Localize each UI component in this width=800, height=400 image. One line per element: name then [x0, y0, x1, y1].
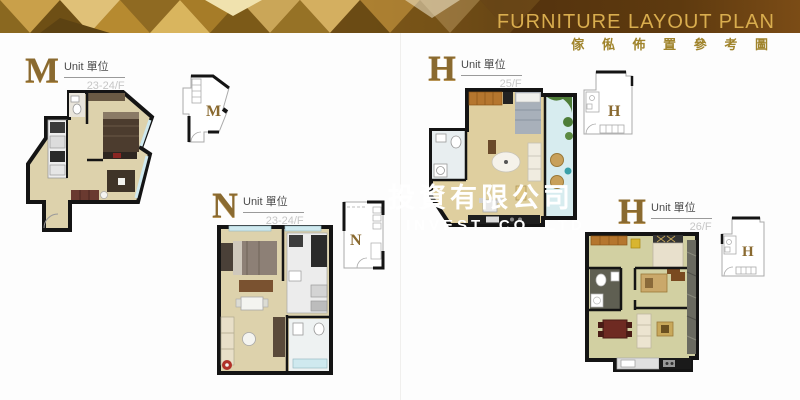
unit-letter-m: M	[25, 55, 59, 86]
h25-bed	[515, 92, 541, 134]
page-title: FURNITURE LAYOUT PLAN	[497, 11, 775, 34]
n-dining	[236, 297, 268, 310]
floor-text-h26: 26/F	[651, 219, 712, 233]
unit-label-m: M Unit 單位 23-24/F	[25, 55, 125, 92]
floor-text-n: 23-24/F	[243, 213, 304, 227]
h25-kitchen-top	[469, 92, 513, 105]
unit-label-h25: H Unit 單位 25/F	[428, 53, 522, 90]
key-letter-n: N	[350, 232, 362, 249]
unit-sub-m: Unit 單位 23-24/F	[64, 55, 125, 92]
key-letter-m: M	[206, 103, 221, 120]
unit-letter-h26: H	[618, 196, 646, 227]
unit-label-n: N Unit 單位 23-24/F	[212, 190, 304, 227]
h25-balcony	[545, 96, 573, 218]
unit-text-n: Unit 單位	[243, 193, 304, 213]
key-plan-h26: H	[712, 212, 768, 295]
n-bathroom	[287, 315, 331, 373]
h25-bathroom	[432, 130, 466, 180]
h26-kitchen	[617, 358, 691, 369]
floor-text-m: 23-24/F	[64, 78, 125, 92]
unit-sub-h26: Unit 單位 26/F	[651, 196, 712, 233]
n-kitchen	[283, 227, 327, 313]
unit-letter-h25: H	[428, 53, 456, 84]
key-plan-m: M	[175, 64, 240, 150]
page-subtitle-chinese: 傢 俬 佈 置 參 考 圖	[571, 34, 775, 53]
unit-text-m: Unit 單位	[64, 58, 125, 78]
floor-plan-m	[25, 90, 175, 235]
key-plan-h25: H	[570, 64, 640, 150]
key-plan-n: N	[337, 195, 390, 275]
unit-sub-h25: Unit 單位 25/F	[461, 53, 522, 90]
page-fold-line	[400, 33, 401, 400]
unit-text-h26: Unit 單位	[651, 199, 712, 219]
h25-kitchen-bottom	[468, 215, 540, 224]
unit-letter-n: N	[212, 190, 238, 221]
floor-plan-n	[215, 225, 335, 375]
h26-dining	[598, 320, 632, 338]
unit-text-h25: Unit 單位	[461, 56, 522, 76]
unit-sub-n: Unit 單位 23-24/F	[243, 190, 304, 227]
floor-plan-h26	[575, 232, 705, 375]
floor-plan-h25	[428, 88, 578, 228]
unit-label-h26: H Unit 單位 26/F	[618, 196, 712, 233]
h26-bathroom	[589, 268, 621, 310]
furniture-layout-page: FURNITURE LAYOUT PLAN 傢 俬 佈 置 參 考 圖 M Un…	[0, 0, 800, 400]
h26-feature-wall	[687, 240, 696, 354]
key-letter-h26: H	[742, 244, 754, 260]
key-letter-h25: H	[608, 103, 621, 120]
floor-text-h25: 25/F	[461, 76, 522, 90]
m-kitchen	[48, 120, 67, 178]
